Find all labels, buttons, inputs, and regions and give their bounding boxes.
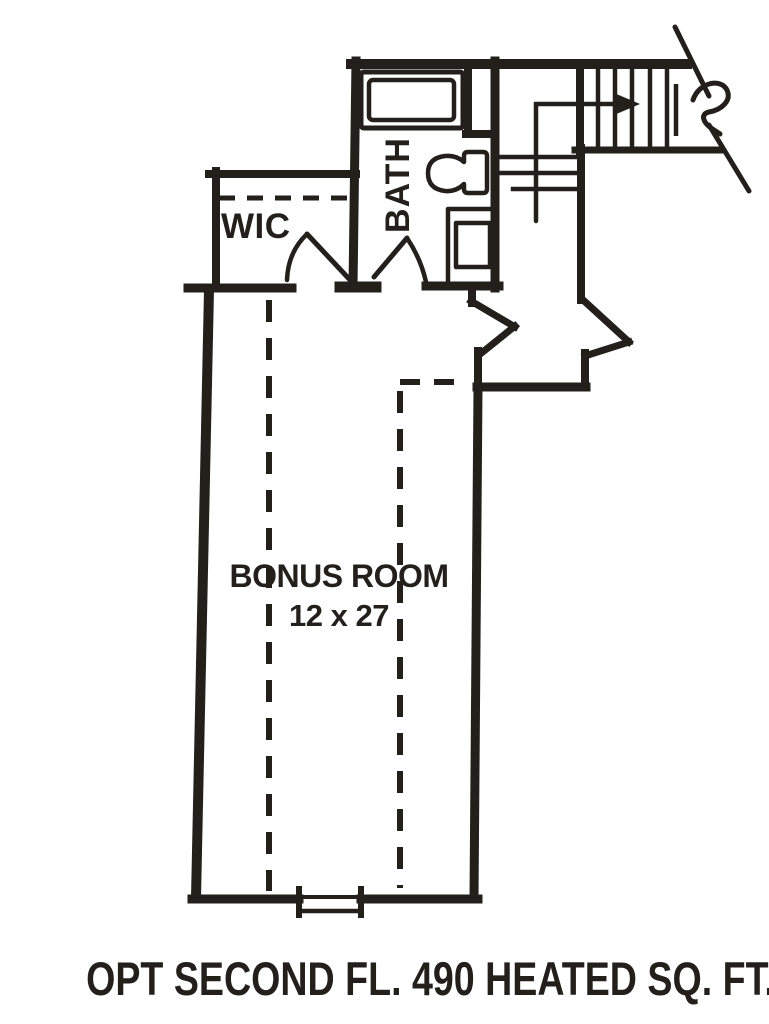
toilet xyxy=(428,152,487,193)
wall-segment xyxy=(582,299,629,342)
sink-vanity xyxy=(448,209,494,283)
wic-door-swing xyxy=(287,234,352,282)
wall-segment xyxy=(479,326,515,355)
stairs-group xyxy=(501,27,749,221)
room-dimensions-bonus-room: 12 x 27 xyxy=(289,600,389,631)
caption-row: OPT SECOND FL. 490 HEATED SQ. FT. xyxy=(0,955,769,1002)
room-label-bath: BATH xyxy=(381,137,415,233)
stair-treads-lower xyxy=(501,157,577,189)
plan-caption: OPT SECOND FL. 490 HEATED SQ. FT. xyxy=(86,955,769,1002)
bath-door-swing xyxy=(374,238,426,282)
wall-segment xyxy=(585,342,629,356)
floor-plan-page: WIC BATH BONUS ROOM 12 x 27 OPT SECOND F… xyxy=(0,0,769,1024)
wall-segment xyxy=(474,388,478,898)
window-symbol xyxy=(299,889,361,915)
ceiling-slope-dashed-lines xyxy=(269,300,459,891)
arrowhead xyxy=(614,93,640,115)
wall-segment xyxy=(471,301,515,327)
stair-treads-upper xyxy=(598,69,676,147)
bathtub xyxy=(361,72,463,128)
stair-break-symbol xyxy=(675,27,749,191)
room-label-wic: WIC xyxy=(221,209,291,244)
wall-segment xyxy=(196,290,209,898)
room-label-bonus-room: BONUS ROOM xyxy=(230,560,449,592)
